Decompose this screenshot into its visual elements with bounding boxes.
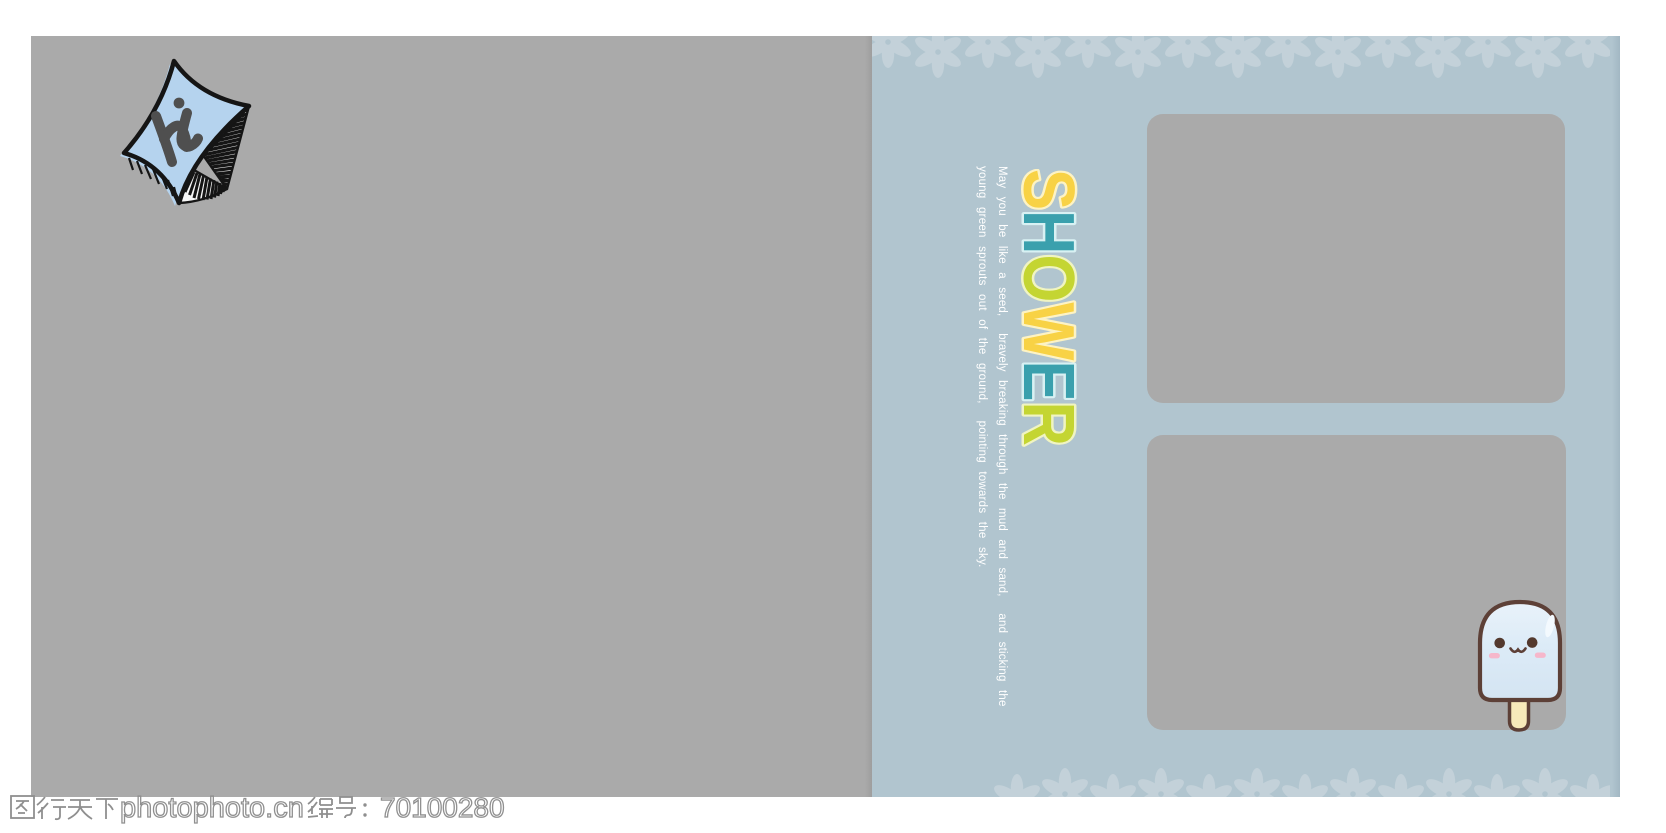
svg-text:70100280: 70100280 — [380, 792, 505, 823]
svg-text:SHOWER: SHOWER — [1008, 169, 1080, 446]
svg-text:photophoto.cn: photophoto.cn — [120, 792, 304, 824]
